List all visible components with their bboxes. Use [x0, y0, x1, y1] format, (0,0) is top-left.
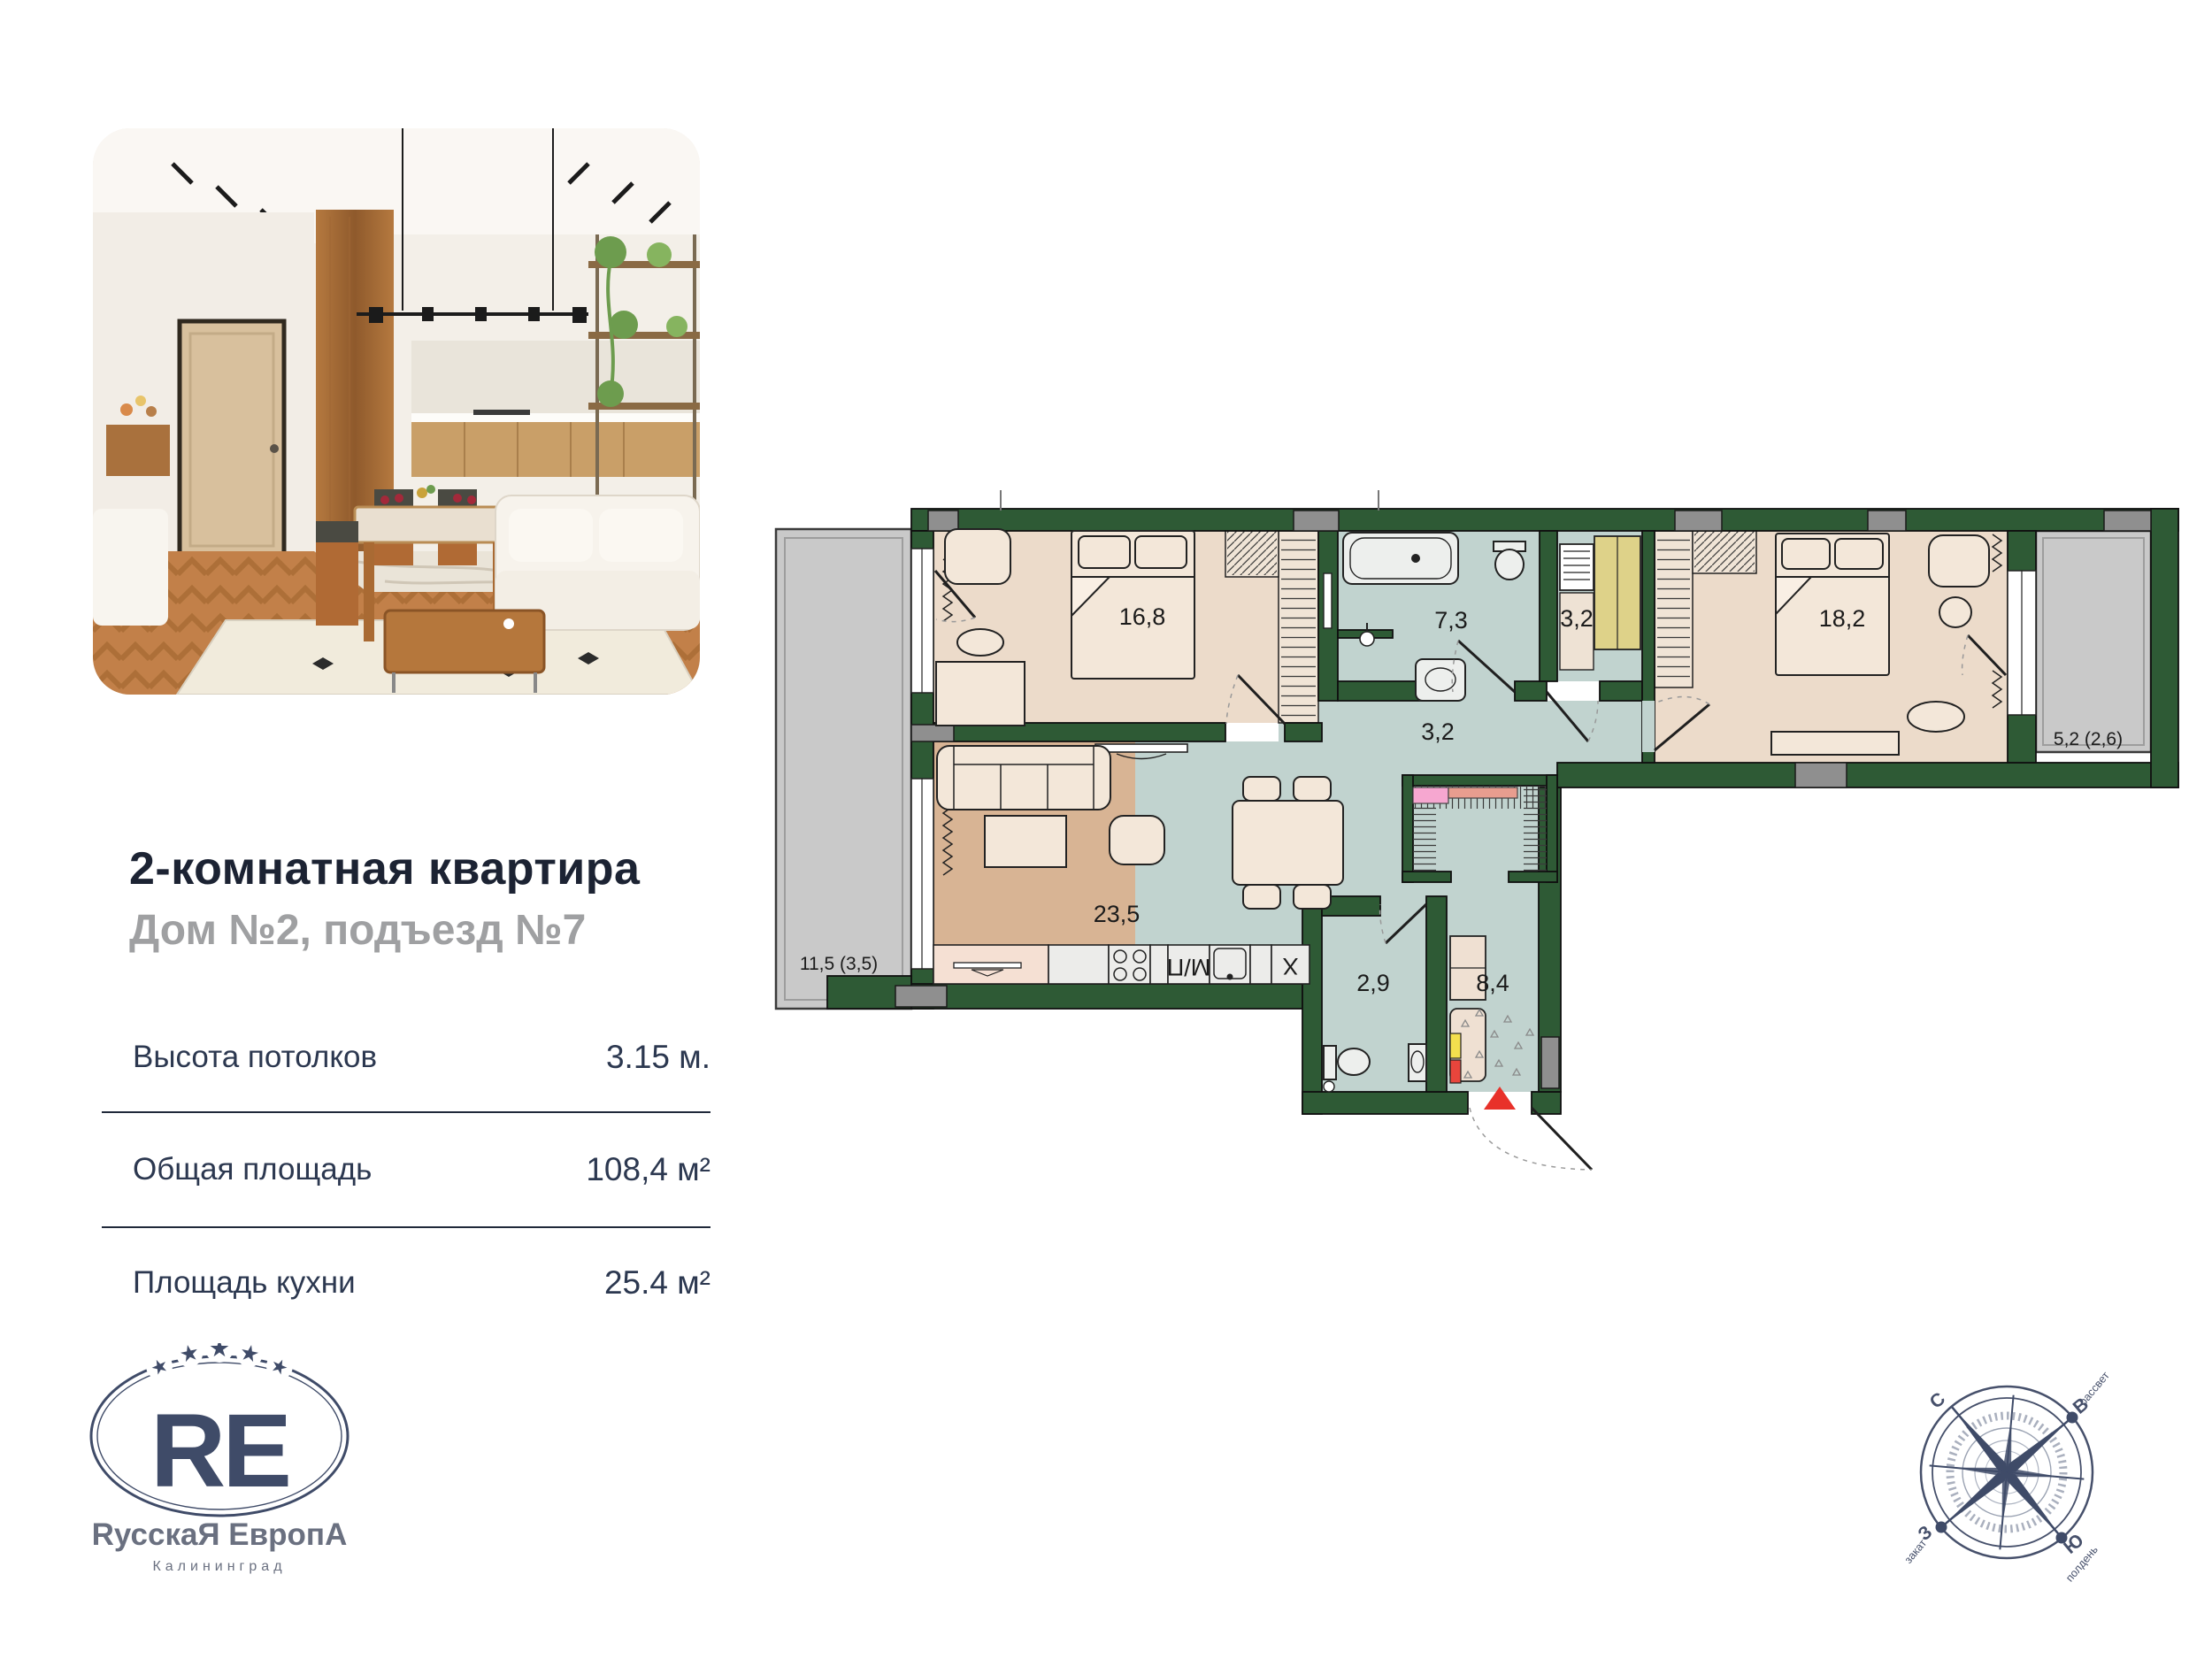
washer-label: М/П: [1167, 954, 1210, 980]
dining-table: [1233, 801, 1343, 885]
spec-row-total-area: Общая площадь 108,4 м²: [102, 1141, 710, 1198]
room-area-label: 11,5 (3,5): [800, 954, 878, 974]
spec-label: Высота потолков: [133, 1040, 377, 1075]
room-area-label: 16,8: [1119, 603, 1166, 630]
developer-logo: ★ ★ ★ ★ ★ RE RусскаЯ ЕвропА Калининград: [78, 1343, 370, 1586]
spec-value: 3.15 м.: [606, 1039, 710, 1076]
dining-chair: [1294, 777, 1331, 801]
apartment-photo: [93, 128, 700, 695]
armchair: [1929, 535, 1989, 587]
washbasin: [1416, 659, 1465, 701]
room-area-label: 7,3: [1434, 607, 1468, 634]
compass-rose: С В З Ю рассвет закат полдень: [1895, 1361, 2118, 1584]
toilet-bowl: [1495, 549, 1524, 580]
room-area-label: 8,4: [1476, 970, 1509, 996]
spec-row-kitchen-area: Площадь кухни 25.4 м²: [102, 1255, 710, 1311]
hood-label: X: [1282, 953, 1298, 979]
floor-plan: М/П X: [768, 488, 2184, 1187]
floor-drain: [1324, 1081, 1334, 1092]
apartment-photo-illustration: [93, 128, 700, 695]
faucet: [1360, 632, 1374, 646]
spec-label: Общая площадь: [133, 1152, 372, 1187]
desk: [936, 662, 1025, 726]
compass-north-label: С: [1926, 1388, 1949, 1412]
room-area-label: 18,2: [1819, 605, 1866, 632]
dining-chair: [1243, 777, 1280, 801]
logo-stars: ★ ★ ★ ★ ★: [146, 1343, 293, 1380]
photo-entry-door: [180, 321, 284, 558]
toilet-bowl: [1338, 1048, 1370, 1075]
compass-dawn-label: рассвет: [2077, 1369, 2112, 1408]
logo-monogram: RE: [150, 1393, 288, 1509]
towel-rail: [1324, 573, 1332, 628]
desk-chair: [957, 629, 1003, 656]
room-area-label: 3,2: [1560, 605, 1594, 632]
dining-chair: [1294, 885, 1331, 909]
kitchen-counter: М/П X: [933, 945, 1310, 984]
spec-row-ceiling-height: Высота потолков 3.15 м.: [102, 1029, 710, 1086]
toilet-tank: [1324, 1046, 1336, 1079]
dining-chair: [1243, 885, 1280, 909]
armchair: [1110, 816, 1164, 864]
storage-fixtures: [1560, 536, 1640, 670]
spec-divider: [102, 1226, 710, 1228]
logo-brand-name: RусскаЯ ЕвропА: [92, 1517, 348, 1552]
page-subtitle: Дом №2, подъезд №7: [129, 906, 586, 955]
star-icon: ★: [177, 1343, 202, 1368]
spec-value: 108,4 м²: [586, 1151, 710, 1188]
spec-divider: [102, 1111, 710, 1113]
desk: [1771, 732, 1899, 755]
pouf: [1939, 597, 1971, 627]
armchair: [945, 529, 1010, 584]
logo-city: Калининград: [152, 1559, 286, 1574]
coffee-table: [985, 816, 1066, 867]
spec-label: Площадь кухни: [133, 1265, 356, 1301]
spec-value: 25.4 м²: [604, 1264, 710, 1302]
flyer-page: 2-комнатная квартира Дом №2, подъезд №7 …: [0, 0, 2212, 1659]
bathtub: [1343, 533, 1458, 584]
star-icon: ★: [237, 1343, 262, 1368]
room-area-label: 3,2: [1421, 718, 1455, 745]
room-area-label: 23,5: [1094, 901, 1141, 927]
star-icon: ★: [209, 1343, 230, 1362]
room-balcony-right: [2036, 531, 2151, 752]
room-area-label: 2,9: [1356, 970, 1390, 996]
room-balcony-left: [776, 529, 911, 1009]
desk-chair: [1908, 702, 1964, 732]
sofa: [937, 746, 1110, 810]
bedroom-2-door-opening: [1642, 701, 1655, 752]
room-area-label: 5,2 (2,6): [2054, 729, 2123, 749]
page-title: 2-комнатная квартира: [129, 842, 640, 895]
